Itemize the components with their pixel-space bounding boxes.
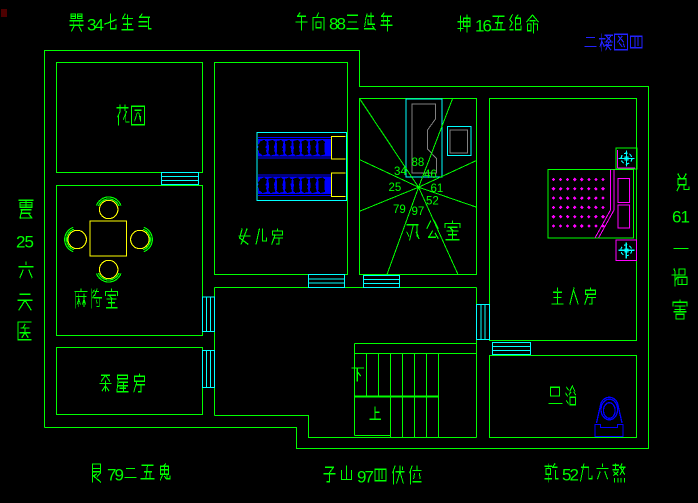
svg-text:46: 46	[424, 169, 437, 181]
svg-text:88: 88	[329, 15, 346, 34]
svg-text:34: 34	[87, 16, 104, 35]
svg-text:97: 97	[412, 206, 425, 218]
svg-text:88: 88	[412, 157, 425, 169]
svg-text:79: 79	[107, 466, 124, 485]
svg-text:25: 25	[389, 182, 402, 194]
svg-text:34: 34	[394, 166, 407, 178]
svg-text:61: 61	[672, 208, 690, 227]
svg-text:25: 25	[16, 233, 34, 252]
svg-text:61: 61	[431, 183, 444, 195]
svg-text:16: 16	[475, 17, 492, 36]
svg-text:97: 97	[357, 468, 374, 487]
svg-text:52: 52	[426, 196, 439, 208]
svg-text:79: 79	[393, 204, 406, 216]
svg-text:52: 52	[562, 466, 579, 485]
